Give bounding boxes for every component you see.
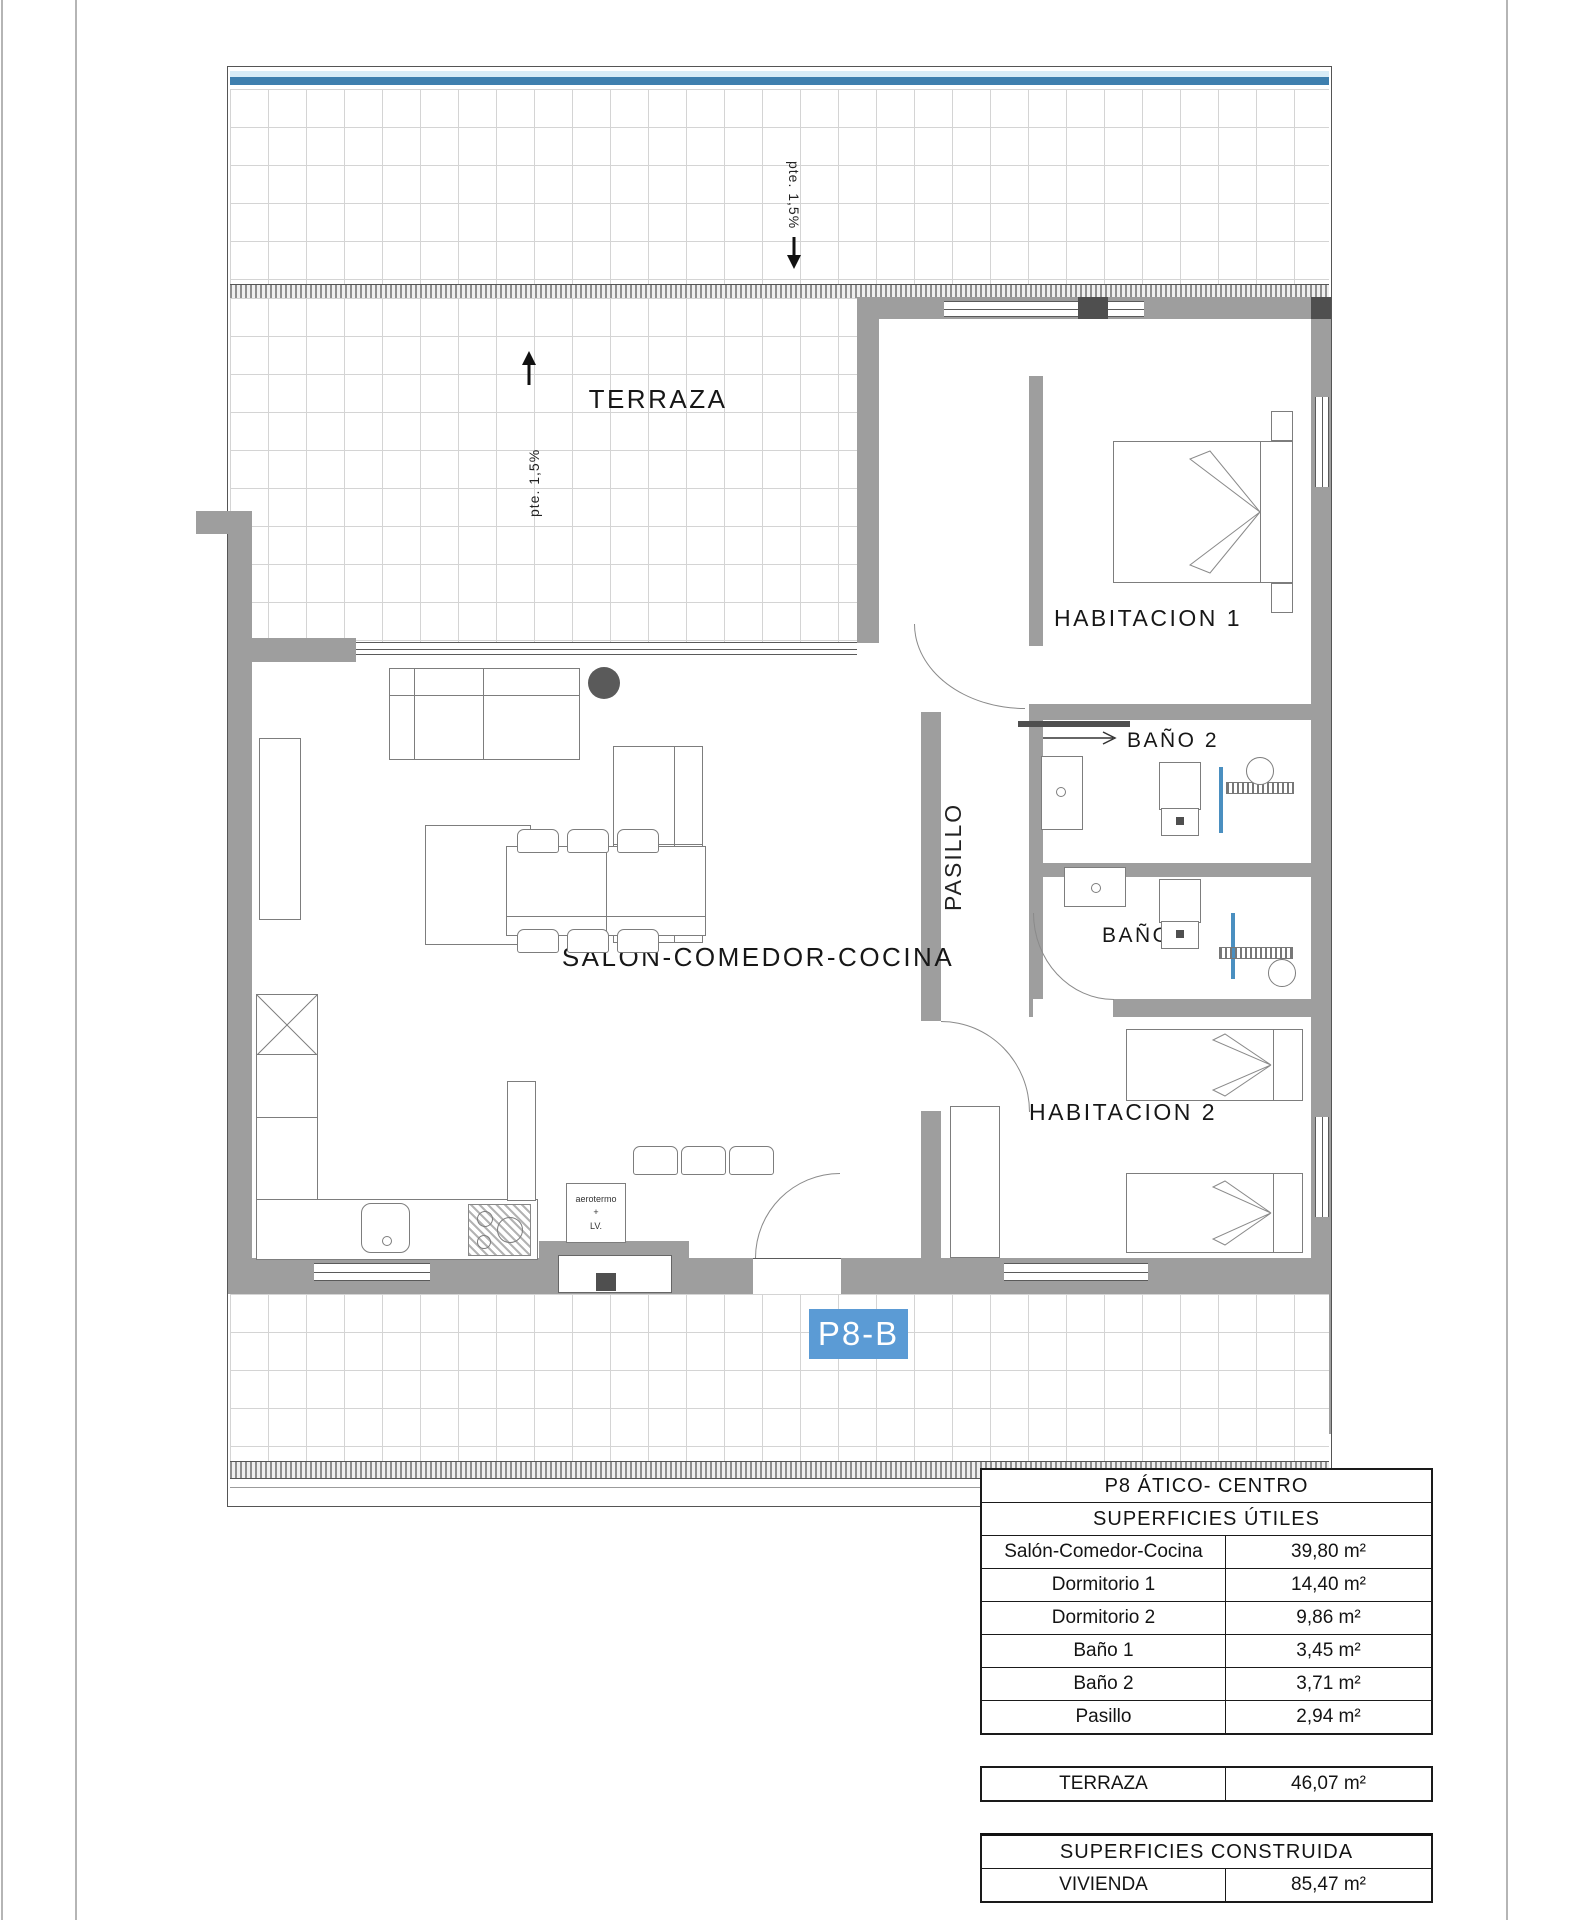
row-value: 14,40 m² [1226,1574,1431,1596]
table-superficies-construida: SUPERFICIES CONSTRUIDA VIVIENDA 85,47 m² [980,1833,1433,1903]
walkway-tile-grid [230,1294,1329,1461]
table-terraza: TERRAZA 46,07 m² [980,1766,1433,1802]
nightstand [1271,583,1293,613]
kitchen-sink [361,1203,410,1253]
tv-cabinet [259,738,301,920]
table-superficies-utiles: P8 ÁTICO- CENTRO SUPERFICIES ÚTILES Saló… [980,1468,1433,1735]
roof-stripe-dark [230,77,1329,85]
room-label-habitacion2: HABITACION 2 [973,1099,1273,1126]
washbasin [1064,867,1126,907]
row-value: 85,47 m² [1226,1874,1431,1896]
table-row: Dormitorio 1 14,40 m² [982,1568,1431,1601]
toilet-bowl [1161,808,1199,836]
row-label: TERRAZA [982,1768,1226,1800]
window-cocina-south [314,1263,430,1281]
chair [617,829,659,853]
table-row: Baño 1 3,45 m² [982,1634,1431,1667]
entrance-porch-shaft [596,1273,616,1291]
wall-terraza-habitacion1 [857,319,879,643]
row-value: 39,80 m² [1226,1541,1431,1563]
row-label: VIVIENDA [982,1869,1226,1901]
wardrobe [950,1106,1000,1258]
slope-arrow-up-icon [520,351,538,385]
table-title: SUPERFICIES CONSTRUIDA [1060,1841,1353,1864]
table-subtitle: SUPERFICIES ÚTILES [1093,1508,1320,1531]
window-habitacion2-south [1004,1263,1148,1281]
row-value: 3,71 m² [1226,1673,1431,1695]
towel-radiator [1219,947,1293,959]
window-habitacion1-east [1315,397,1329,487]
row-label: Salón-Comedor-Cocina [982,1536,1226,1568]
chair [567,829,609,853]
table-row: Baño 2 3,71 m² [982,1667,1431,1700]
roof-slope-label: pte. 1,5% [786,161,802,229]
row-value: 9,86 m² [1226,1607,1431,1629]
unit-badge: P8-B [809,1309,908,1359]
glass-door-terraza-salon [356,642,857,655]
floor-plan: pte. 1,5% TERRAZA pte. 1,5% [227,66,1332,1507]
stool [681,1146,726,1175]
toilet-cistern [1159,762,1201,810]
table-subtitle-row: SUPERFICIES ÚTILES [982,1502,1431,1535]
room-label-bano1: BAÑO 1 [1063,924,1233,948]
terraza-tile-grid [230,298,857,642]
stool [633,1146,678,1175]
row-label: Dormitorio 1 [982,1569,1226,1601]
table-title-row: P8 ÁTICO- CENTRO [982,1470,1431,1502]
shower-tray [1041,756,1083,830]
dining-table [506,846,706,936]
page-margin-line-right [1506,0,1508,1920]
chair [517,829,559,853]
shower-screen-blue [1219,767,1223,833]
row-label: Baño 2 [982,1668,1226,1700]
room-label-habitacion1: HABITACION 1 [998,605,1298,632]
slope-arrow-down-icon [785,237,803,269]
door-opening-habitacion2 [921,1021,941,1111]
sliding-door-bano2 [1018,721,1130,727]
bed-single [1126,1029,1303,1101]
window-habitacion2-east [1315,1117,1329,1217]
floorplan-page: { "plan": { "unit_badge": "P8-B", "rooms… [0,0,1579,1920]
fridge [256,1054,318,1119]
page-edge-line-left [1,0,3,1920]
window-habitacion1-north [944,301,1144,317]
row-label: Pasillo [982,1701,1226,1733]
wall-pillar-north [1078,297,1108,319]
entrance-opening [753,1258,841,1296]
washbasin-round [1268,959,1296,987]
toilet-bowl [1161,921,1199,949]
row-label: Dormitorio 2 [982,1602,1226,1634]
washbasin-round [1246,757,1274,785]
door-arc-entrance [755,1173,840,1258]
chair [617,929,659,953]
toilet-cistern [1159,879,1201,923]
row-value: 2,94 m² [1226,1706,1431,1728]
terrace-slope-label: pte. 1,5% [526,449,542,517]
wall-habitacion1-bano2 [1029,704,1311,720]
shaft-box [256,994,318,1056]
wall-salon-pasillo [921,712,941,1258]
table-title: P8 ÁTICO- CENTRO [1105,1475,1309,1498]
room-label-pasillo: PASILLO [940,803,967,911]
shower-screen-blue [1231,913,1235,979]
table-row: Dormitorio 2 9,86 m² [982,1601,1431,1634]
room-label-bano2: BAÑO 2 [1088,729,1258,753]
table-row: TERRAZA 46,07 m² [982,1768,1431,1800]
table-row: VIVIENDA 85,47 m² [982,1868,1431,1901]
area-tables: P8 ÁTICO- CENTRO SUPERFICIES ÚTILES Saló… [980,1468,1433,1903]
row-label: Baño 1 [982,1635,1226,1667]
kitchen-counter-return [507,1081,536,1201]
wall-west [228,511,252,1294]
door-opening-bano1 [1033,999,1113,1017]
room-label-terraza: TERRAZA [578,384,738,415]
table-row: Salón-Comedor-Cocina 39,80 m² [982,1535,1431,1568]
bed-single [1126,1173,1303,1253]
chair [517,929,559,953]
stool [729,1146,774,1175]
kitchen-counter-left [256,1117,318,1201]
chair [567,929,609,953]
door-arc-pasillo [914,624,1025,709]
table-row: Pasillo 2,94 m² [982,1700,1431,1733]
aerotermo-label-line1: aerotermo [575,1193,616,1207]
row-value: 3,45 m² [1226,1640,1431,1662]
cooktop [468,1204,531,1256]
row-value: 46,07 m² [1226,1773,1431,1795]
aerotermo-label-line3: LV. [590,1220,602,1234]
sofa [389,668,580,760]
column [588,667,620,699]
roof-tile-grid [230,89,1329,284]
aerotermo-unit: aerotermo + LV. [566,1183,626,1243]
nightstand [1271,411,1293,441]
page-margin-line-left [75,0,77,1920]
aerotermo-label-line2: + [593,1206,598,1220]
bed-double [1113,441,1293,583]
table-title-row: SUPERFICIES CONSTRUIDA [982,1836,1431,1868]
